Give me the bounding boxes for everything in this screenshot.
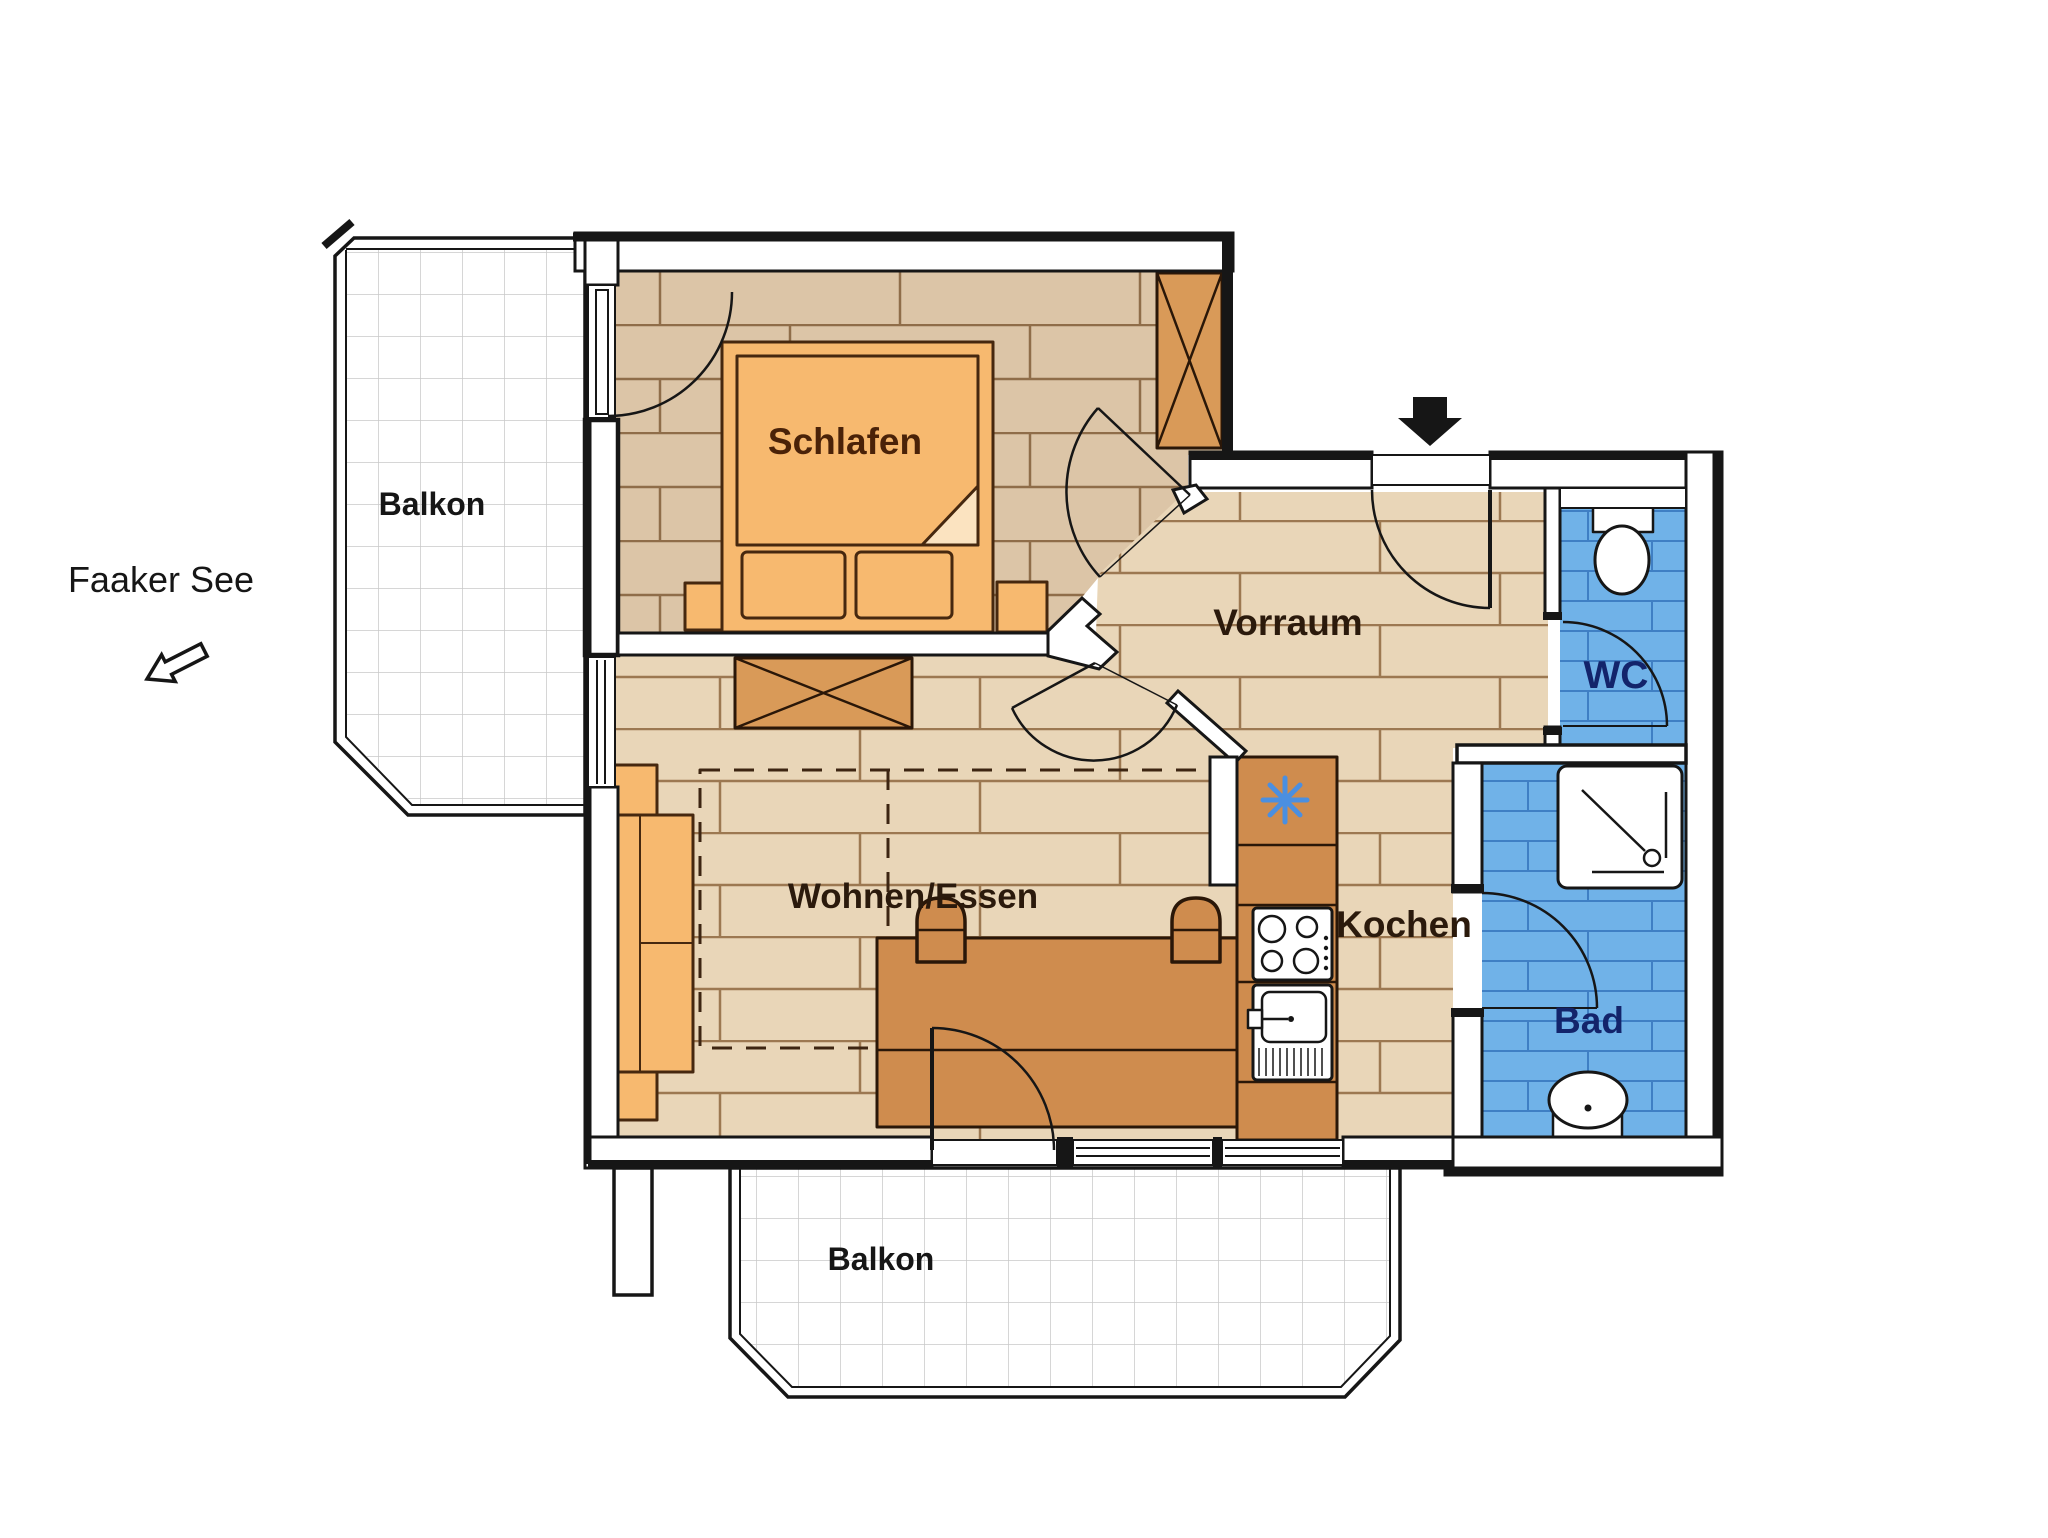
fridge-star-icon [1263,778,1307,822]
room-label-wohnen-essen: Wohnen/Essen [788,877,1038,916]
wall-kitchen-stub [1210,757,1237,885]
bottom-window-left [1073,1140,1213,1165]
room-label-kochen: Kochen [1336,904,1472,945]
room-label-balkon-bottom: Balkon [828,1241,935,1277]
wall-wc-left-upper [1545,488,1560,616]
shower [1558,766,1682,888]
room-label-balkon-left: Balkon [379,486,486,522]
balcony-left-floor [347,250,585,804]
wardrobe [1157,273,1222,448]
stove [1253,908,1332,980]
room-label-wc: WC [1584,654,1649,697]
wall-bedroom-living-divider [618,633,1050,655]
sofa [613,765,693,1120]
entrance-threshold [1372,455,1490,485]
bottom-window-right [1222,1140,1343,1165]
neighbour-divider-wall [614,1168,652,1295]
wall-bottom-b [1057,1137,1073,1168]
wall-nook-right [1222,233,1233,458]
wall-left-top [585,240,618,285]
chair-right [1172,898,1220,962]
room-label-vorraum: Vorraum [1213,602,1362,643]
wc-top-ledge [1560,488,1686,508]
wall-wc-bath-divider [1457,745,1686,763]
balcony-door-threshold [932,1140,1057,1165]
wall-bottom-c [1213,1137,1222,1168]
washbasin [1549,1072,1627,1137]
annotation-faaker-see: Faaker See [68,559,254,600]
bedroom-balcony-door-frame [588,285,615,418]
toilet [1593,506,1653,594]
balcony-bottom [614,1168,1400,1397]
sideboard [735,658,912,728]
entrance-arrow-icon [1398,397,1462,446]
room-label-schlafen: Schlafen [768,421,922,462]
room-label-bad: Bad [1554,1000,1624,1041]
balcony-bottom-floor [740,1168,1390,1387]
bed-pillow-right [856,552,952,618]
wall-bath-left-upper [1453,763,1482,892]
wall-bath-left-lower [1453,1010,1482,1137]
floor-plan-page: Schlafen Vorraum Kochen Wohnen/Essen WC … [0,0,2048,1538]
living-balcony-window [588,657,615,787]
lake-direction-arrow-icon [140,637,211,693]
bed-pillow-left [742,552,845,618]
nightstand-right [997,582,1047,632]
floor-plan-drawing: Schlafen Vorraum Kochen Wohnen/Essen WC … [0,0,2048,1538]
kitchen-sink [1248,985,1332,1080]
